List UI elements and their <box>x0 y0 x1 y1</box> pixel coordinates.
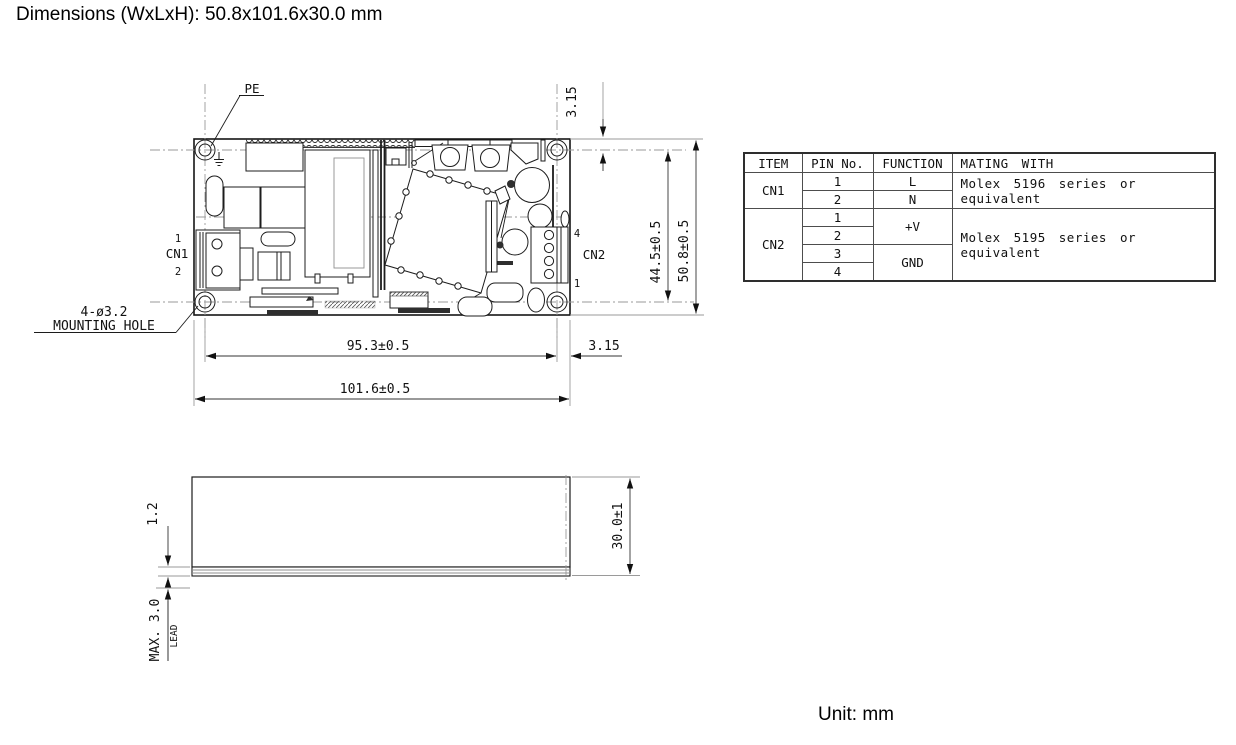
col-header-function: FUNCTION <box>873 153 952 173</box>
dim-pcb-thickness: 1.2 <box>146 502 161 525</box>
unit-note: Unit: mm <box>818 704 894 726</box>
pe-label: PE <box>244 81 259 96</box>
side-view-pcb <box>192 567 570 576</box>
technical-drawing: PE 4-ø3.2 MOUNTING HOLE 1 CN1 2 4 CN2 1 <box>0 0 1236 745</box>
cn1-label: CN1 <box>166 246 189 261</box>
dim-hole-span-horizontal: 95.3±0.5 <box>347 339 410 354</box>
cn2-item-cell: CN2 <box>744 209 802 282</box>
dim-top-edge-to-hole: 3.15 <box>565 86 580 117</box>
cn1-pin1-label: 1 <box>175 233 181 245</box>
side-view-case <box>192 477 570 567</box>
cn2-pin3-cell: 3 <box>802 245 873 263</box>
col-header-mating: MATING WITH <box>952 153 1215 173</box>
col-header-pin: PIN No. <box>802 153 873 173</box>
cn2-pin4-cell: 4 <box>802 263 873 282</box>
col-header-item: ITEM <box>744 153 802 173</box>
cn2-mating-cell: Molex 5195 series or equivalent <box>952 209 1215 282</box>
dim-lead-max: MAX. 3.0 <box>148 599 163 662</box>
cn1-pin2-label: 2 <box>175 266 181 278</box>
board-top-view: PE 4-ø3.2 MOUNTING HOLE 1 CN1 2 4 CN2 1 <box>34 81 694 338</box>
cn1-fn2-cell: N <box>873 191 952 209</box>
dim-hole-span-vertical: 44.5±0.5 <box>649 221 664 284</box>
cn2-pin1-label: 1 <box>574 278 580 290</box>
cn2-connector <box>531 227 568 283</box>
dim-board-width: 50.8±0.5 <box>677 220 692 283</box>
connector-table: ITEM PIN No. FUNCTION MATING WITH CN1 1 … <box>743 152 1216 282</box>
table-header-row: ITEM PIN No. FUNCTION MATING WITH <box>744 153 1215 173</box>
table-row-cn1-pin1: CN1 1 L Molex 5196 series or equivalent <box>744 173 1215 191</box>
side-view: 30.0±1 1.2 MAX. 3.0 LEAD <box>146 475 640 661</box>
cn1-connector <box>196 230 240 290</box>
cn2-pin4-label: 4 <box>574 228 580 240</box>
page: Dimensions (WxLxH): 50.8x101.6x30.0 mm <box>0 0 1236 745</box>
mounting-hole-callout-text: MOUNTING HOLE <box>53 319 155 334</box>
table-row-cn2-pin1: CN2 1 +V Molex 5195 series or equivalent <box>744 209 1215 227</box>
cn2-pin2-cell: 2 <box>802 227 873 245</box>
part-number-illegible <box>325 301 375 308</box>
cn1-mating-cell: Molex 5196 series or equivalent <box>952 173 1215 209</box>
dim-lead-label: LEAD <box>169 624 180 647</box>
dim-board-length: 101.6±0.5 <box>340 382 410 397</box>
cn1-pin2-cell: 2 <box>802 191 873 209</box>
dim-hole-to-edge-right: 3.15 <box>588 339 619 354</box>
cn2-label: CN2 <box>583 247 606 262</box>
cn1-pin1-cell: 1 <box>802 173 873 191</box>
cn1-item-cell: CN1 <box>744 173 802 209</box>
dim-case-height: 30.0±1 <box>611 503 626 550</box>
cn1-fn1-cell: L <box>873 173 952 191</box>
cn2-pin1-cell: 1 <box>802 209 873 227</box>
cn2-fn34-cell: GND <box>873 245 952 282</box>
mounting-hole-callout-size: 4-ø3.2 <box>81 305 128 320</box>
cn2-fn12-cell: +V <box>873 209 952 245</box>
